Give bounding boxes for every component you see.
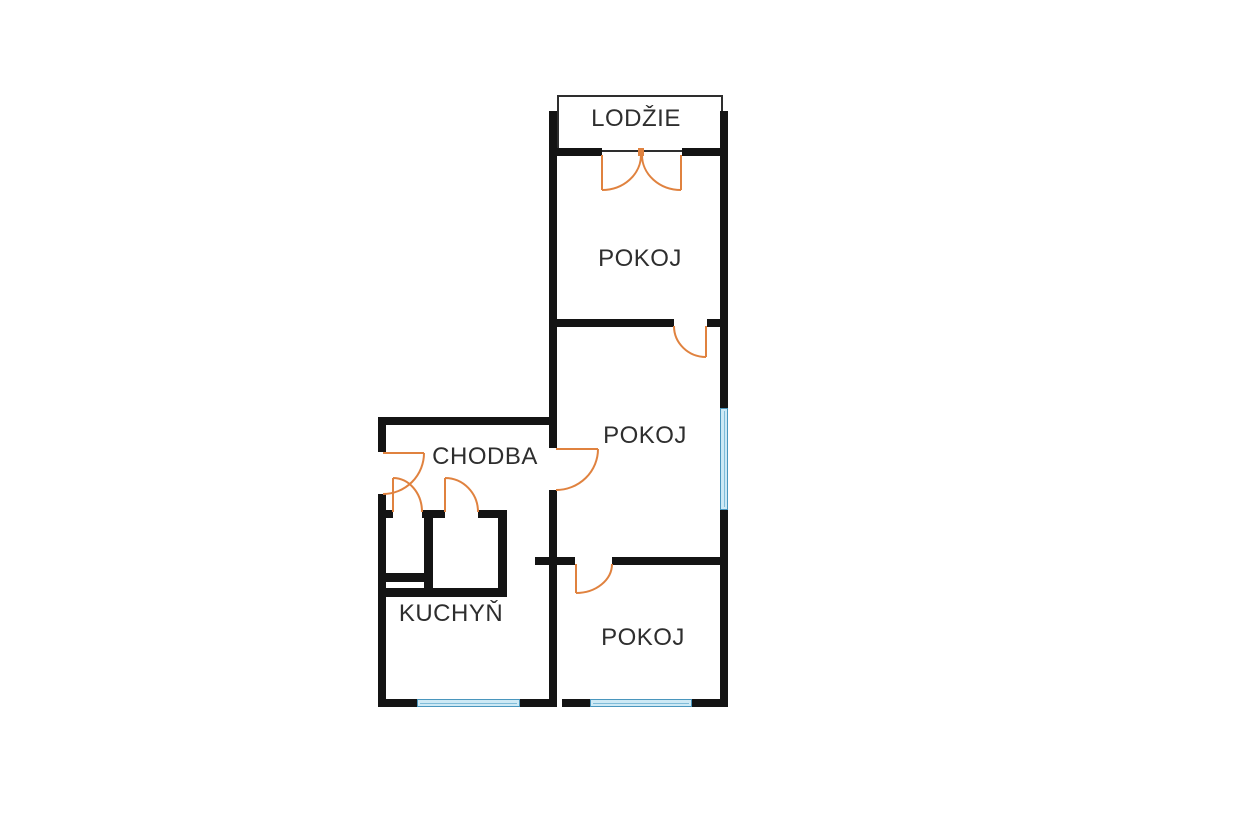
balcony-door-meeting-stile: [638, 148, 644, 156]
wc-door: [393, 478, 422, 512]
label-room-middle: POKOJ: [603, 423, 687, 449]
bathroom-door: [445, 478, 478, 512]
label-kitchen: KUCHYŇ: [399, 601, 503, 627]
balcony-door-left-leaf: [602, 155, 641, 190]
entrance-door: [383, 453, 424, 494]
room1-room2-door: [674, 326, 706, 357]
label-loggia: LODŽIE: [591, 106, 681, 132]
label-hallway: CHODBA: [432, 444, 538, 470]
room3-door: [576, 564, 612, 593]
balcony-door-right-leaf: [642, 155, 681, 190]
room2-door: [556, 449, 598, 490]
floor-plan: LODŽIE POKOJ POKOJ POKOJ CHODBA KUCHYŇ: [0, 0, 1256, 817]
label-room-top: POKOJ: [598, 246, 682, 272]
label-room-bottom: POKOJ: [601, 625, 685, 651]
